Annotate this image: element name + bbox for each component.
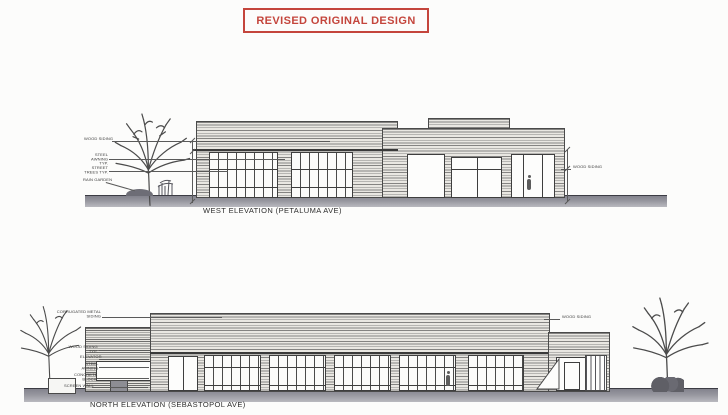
west-steel-awning [193, 149, 398, 151]
north-steel-awning [150, 352, 548, 354]
door-frame-line [523, 155, 524, 197]
north-elevation-caption: NORTH ELEVATION (SEBASTOPOL AVE) [90, 400, 246, 409]
callout-screen-wall: SCREEN WALL [64, 384, 91, 388]
west-entry-opening [407, 154, 445, 198]
person-figure-sketch [526, 175, 532, 190]
north-storefront-window [468, 355, 524, 391]
callout-wood-siding: WOOD SIDING TYP. [68, 345, 98, 354]
ramp-wedge-sketch [536, 356, 560, 390]
west-entry-storefront [451, 157, 502, 198]
window-sill-line [205, 385, 260, 386]
leader-line [99, 367, 149, 368]
revision-stamp-text: REVISED ORIGINAL DESIGN [256, 15, 415, 27]
window-sill-line [270, 385, 325, 386]
leader-line [109, 171, 228, 172]
north-storefront-window [269, 355, 326, 391]
leader-line [102, 317, 222, 318]
window-transom [270, 367, 325, 368]
streetscape-sketch [156, 175, 182, 197]
callout-corrugated-metal-siding: CORRUGATED METAL SIDING [56, 310, 101, 319]
window-transom [400, 367, 455, 368]
revision-stamp: REVISED ORIGINAL DESIGN [243, 8, 429, 33]
leader-line [109, 159, 285, 160]
window-sill-line [210, 187, 277, 188]
callout-wood-siding-right: WOOD SIDING [562, 315, 591, 319]
north-storefront-window [204, 355, 261, 391]
west-entry-door [511, 154, 555, 198]
drawing-sheet: REVISED ORIGINAL DESIGN [0, 0, 728, 415]
window-transom [210, 169, 277, 170]
west-storefront-window [291, 152, 353, 198]
door-split-line [477, 158, 478, 197]
callout-wood-siding-right: WOOD SIDING [573, 165, 602, 169]
callout-concrete-block: CONCRETE BLOCK [74, 373, 97, 382]
callout-steel-awning: STEEL AWNING [76, 362, 99, 371]
north-entry-opening [168, 356, 198, 391]
north-right-door-opening [556, 357, 586, 391]
window-mullions [292, 153, 352, 197]
window-transom [205, 367, 260, 368]
window-sill-line [335, 385, 390, 386]
west-elevation-caption: WEST ELEVATION (PETALUMA AVE) [203, 206, 342, 215]
window-sill-line [469, 385, 523, 386]
door-frame-line [542, 155, 543, 197]
leader-line [561, 169, 571, 170]
window-transom [335, 367, 390, 368]
shrub-sketch [650, 377, 684, 392]
door-leaf [564, 362, 580, 390]
dimension-line [567, 149, 568, 202]
leader-line [99, 359, 149, 360]
north-service-door [110, 380, 128, 392]
person-figure-sketch [445, 371, 451, 386]
leader-line [92, 387, 148, 388]
callout-steel-awning: STEEL AWNING TYP. [82, 153, 108, 166]
leader-line [97, 378, 149, 379]
door-split-line [183, 357, 184, 390]
north-storefront-window [334, 355, 391, 391]
callout-street-trees: STREET TREES TYP. [82, 166, 108, 175]
callout-wood-siding: WOOD SIDING [84, 137, 110, 141]
window-transom [452, 169, 501, 170]
leader-line [112, 141, 330, 142]
window-transom [469, 367, 523, 368]
north-screen-wall-slats [585, 355, 607, 391]
callout-elevator: ELEVATOR [80, 355, 98, 359]
window-sill-line [292, 187, 352, 188]
leader-line [99, 350, 151, 351]
window-transom [292, 169, 352, 170]
leader-line [544, 319, 560, 320]
